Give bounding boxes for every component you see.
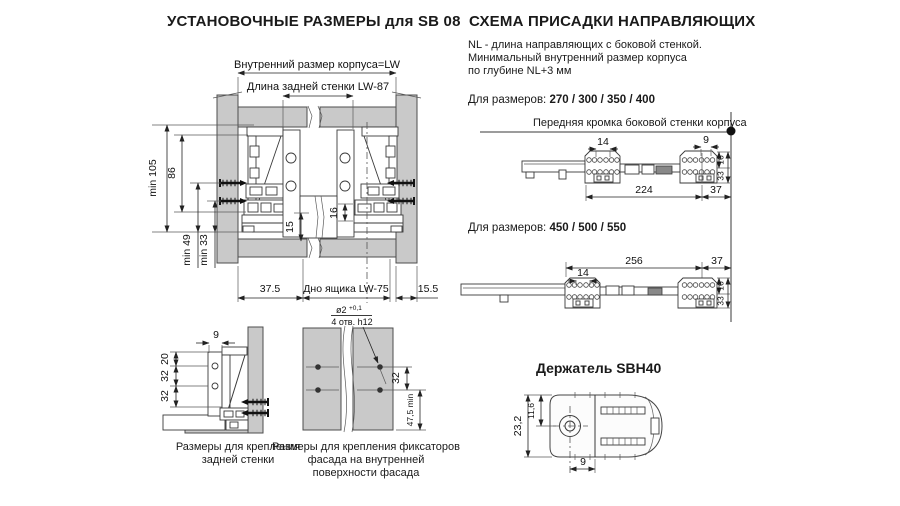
sizes-long-row: Для размеров: 450 / 500 / 550 [468, 222, 626, 234]
dim-37: 37 [710, 184, 722, 196]
rail-diagram-short: 14 9 224 37 16 33 [522, 134, 731, 201]
dim-15-5: 15.5 [418, 283, 439, 295]
fixator-hole [315, 387, 321, 393]
dim-32-lower: 32 [159, 390, 171, 402]
sizes-short-values: 270 / 300 / 350 / 400 [549, 94, 655, 106]
catalog-page: Внутренний размер корпуса=LW Длина задне… [0, 0, 900, 506]
dim-47-5-min: 47,5 min [405, 393, 415, 426]
back-panel-left-part [238, 107, 307, 127]
dim-20: 20 [159, 353, 171, 365]
nl-note-line1: NL - длина направляющих с боковой стенко… [468, 39, 702, 52]
dim-16: 16 [328, 207, 340, 219]
left-section-title: УСТАНОВОЧНЫЕ РАЗМЕРЫ для SB 08 [167, 13, 461, 30]
fixator-hole [377, 387, 383, 393]
hole-tolerance-label: +0,1 [349, 305, 362, 312]
facade-caption: Размеры для крепления фиксаторов фасада … [268, 441, 464, 480]
sizes-long-label: Для размеров: [468, 222, 546, 234]
back-panel-right-part [320, 107, 396, 127]
nl-note-line2: Минимальный внутренний размер корпуса [468, 52, 702, 65]
dim-11-6: 11,6 [526, 403, 536, 419]
sizes-long-values: 450 / 500 / 550 [549, 222, 626, 234]
dim-16: 16 [716, 281, 726, 291]
sizes-short-label: Для размеров: [468, 94, 546, 106]
dim-min-105: min 105 [147, 159, 159, 197]
main-installation-drawing: Внутренний размер корпуса=LW Длина задне… [147, 59, 438, 303]
dim-14: 14 [577, 267, 589, 279]
fixator-hole [377, 364, 383, 370]
facade-caption-line2: фасада на внутренней [268, 454, 464, 467]
sizes-short-row: Для размеров: 270 / 300 / 350 / 400 [468, 94, 655, 106]
dim-33: 33 [716, 296, 726, 306]
front-edge-label: Передняя кромка боковой стенки корпуса [533, 117, 747, 129]
dim-86: 86 [166, 167, 178, 179]
dim-16: 16 [716, 155, 726, 165]
dim-9: 9 [213, 329, 219, 341]
facade-fixator-detail: ø2 +0,1 4 отв. h12 32 47,5 min [303, 305, 426, 432]
dim-inner-width: Внутренний размер корпуса=LW [234, 59, 401, 71]
right-section-title: СХЕМА ПРИСАДКИ НАПРАВЛЯЮЩИХ [469, 13, 755, 30]
dim-37-5: 37.5 [260, 283, 281, 295]
dim-min-33: min 33 [198, 234, 210, 266]
dim-14: 14 [597, 136, 609, 148]
facade-panel-right [353, 328, 393, 430]
facade-panel [248, 327, 263, 433]
holder-body [550, 395, 662, 457]
facade-panel-left [303, 328, 341, 430]
technical-drawing-canvas: Внутренний размер корпуса=LW Длина задне… [0, 0, 900, 506]
dim-32: 32 [390, 372, 402, 384]
bottom-panel-right-part [320, 239, 396, 257]
dim-min-49: min 49 [181, 234, 193, 266]
dim-33: 33 [716, 171, 726, 181]
dim-back-wall-length: Длина задней стенки LW-87 [247, 81, 389, 93]
dim-9: 9 [703, 134, 709, 146]
dim-9: 9 [580, 456, 586, 468]
holder-sbh40-drawing: 23,2 11,6 9 [512, 392, 662, 473]
drawer-bottom-edge [163, 415, 225, 430]
nl-note: NL - длина направляющих с боковой стенко… [468, 39, 702, 78]
rail-diagram-long: 256 37 14 [461, 255, 731, 308]
bottom-panel-left-part [238, 239, 307, 257]
holder-title: Держатель SBH40 [536, 360, 661, 376]
dim-37: 37 [711, 255, 723, 267]
back-wall-fastening-detail: 9 20 32 32 [159, 327, 268, 433]
dim-224: 224 [635, 184, 653, 196]
rail-drilling-diagrams: 14 9 224 37 16 33 [461, 112, 736, 322]
nl-note-line3: по глубине NL+3 мм [468, 65, 702, 78]
dim-drawer-bottom: Дно ящика LW-75 [303, 283, 389, 295]
dim-256: 256 [625, 255, 643, 267]
fixator-hole [315, 364, 321, 370]
hole-count-label: 4 отв. h12 [331, 317, 372, 327]
facade-caption-line1: Размеры для крепления фиксаторов [268, 441, 464, 454]
dim-32-upper: 32 [159, 370, 171, 382]
facade-caption-line3: поверхности фасада [268, 467, 464, 480]
dim-15: 15 [284, 221, 296, 233]
hole-diameter-label: ø2 [336, 305, 347, 315]
dim-23-2: 23,2 [512, 416, 524, 437]
